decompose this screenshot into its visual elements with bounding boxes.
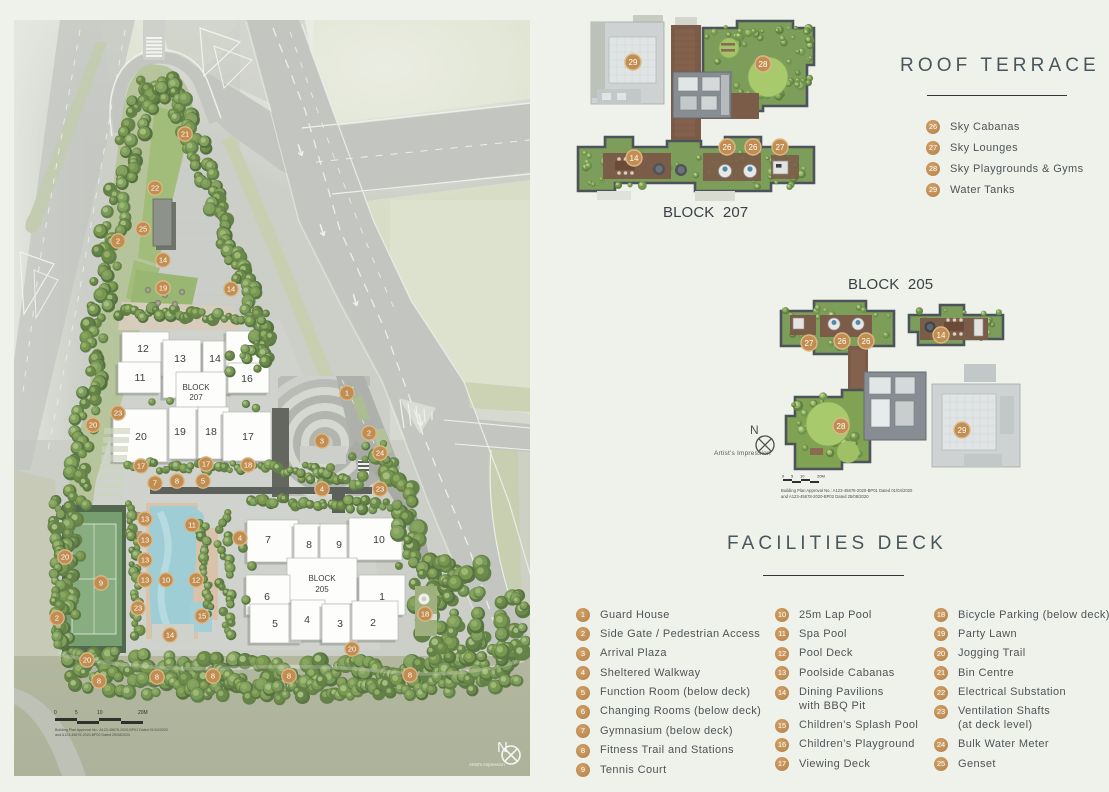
svg-text:22: 22 [151, 184, 159, 193]
svg-text:13: 13 [141, 515, 149, 524]
svg-text:3: 3 [337, 618, 343, 630]
svg-text:17: 17 [242, 431, 254, 443]
svg-text:10: 10 [162, 576, 170, 585]
svg-text:28: 28 [759, 60, 768, 69]
svg-text:9: 9 [336, 539, 342, 551]
svg-text:20M: 20M [138, 710, 148, 716]
svg-text:8: 8 [306, 539, 312, 551]
svg-text:10: 10 [97, 710, 103, 716]
svg-text:and A123-45678-2020-BP02 Dated: and A123-45678-2020-BP02 Dated 25/08/202… [55, 733, 130, 737]
svg-text:18: 18 [421, 610, 429, 619]
svg-text:3: 3 [320, 437, 324, 446]
svg-text:23: 23 [134, 604, 142, 613]
svg-text:4: 4 [320, 485, 324, 494]
svg-text:16: 16 [241, 373, 253, 385]
svg-text:20: 20 [83, 656, 91, 665]
svg-text:2: 2 [116, 237, 120, 246]
svg-text:13: 13 [141, 576, 149, 585]
svg-text:8: 8 [155, 673, 159, 682]
svg-text:5: 5 [791, 474, 794, 479]
svg-text:29: 29 [629, 58, 638, 67]
svg-text:5: 5 [75, 710, 78, 716]
svg-text:17: 17 [137, 462, 145, 471]
svg-text:1: 1 [345, 389, 349, 398]
svg-text:29: 29 [958, 426, 967, 435]
svg-text:14: 14 [159, 256, 167, 265]
svg-text:12: 12 [137, 343, 149, 355]
svg-text:2: 2 [55, 614, 59, 623]
svg-text:18: 18 [244, 461, 252, 470]
svg-text:2: 2 [370, 617, 376, 629]
svg-text:8: 8 [175, 477, 179, 486]
svg-text:4: 4 [304, 614, 310, 626]
svg-text:26: 26 [723, 143, 732, 152]
svg-text:24: 24 [376, 449, 384, 458]
svg-text:6: 6 [264, 591, 270, 603]
svg-text:9: 9 [99, 579, 103, 588]
svg-text:20: 20 [89, 421, 97, 430]
svg-text:20: 20 [348, 645, 356, 654]
svg-text:BLOCK: BLOCK [308, 574, 336, 583]
svg-text:27: 27 [776, 143, 785, 152]
svg-text:0: 0 [782, 474, 785, 479]
svg-text:12: 12 [192, 576, 200, 585]
svg-text:8: 8 [97, 677, 101, 686]
svg-text:5: 5 [201, 477, 205, 486]
svg-text:26: 26 [862, 337, 871, 346]
svg-text:205: 205 [315, 585, 329, 594]
svg-text:14: 14 [209, 353, 221, 365]
svg-text:14: 14 [630, 154, 639, 163]
svg-text:8: 8 [211, 672, 215, 681]
svg-text:13: 13 [174, 353, 186, 365]
svg-text:13: 13 [141, 536, 149, 545]
svg-text:7: 7 [153, 479, 157, 488]
svg-text:13: 13 [141, 556, 149, 565]
svg-text:Artist's Impression: Artist's Impression [469, 762, 505, 767]
svg-text:18: 18 [205, 426, 217, 438]
svg-text:8: 8 [408, 671, 412, 680]
svg-text:5: 5 [272, 618, 278, 630]
svg-text:23: 23 [114, 409, 122, 418]
svg-text:19: 19 [159, 284, 167, 293]
svg-text:25: 25 [139, 225, 147, 234]
svg-text:7: 7 [265, 534, 271, 546]
svg-text:Building Plan Approval No.: A1: Building Plan Approval No.: A123-45678-2… [55, 728, 168, 732]
svg-text:BLOCK: BLOCK [182, 383, 210, 392]
svg-text:15: 15 [198, 612, 206, 621]
svg-text:1: 1 [379, 591, 385, 603]
svg-text:27: 27 [805, 339, 814, 348]
svg-text:8: 8 [287, 672, 291, 681]
svg-text:28: 28 [837, 422, 846, 431]
svg-text:14: 14 [227, 285, 235, 294]
svg-text:20M: 20M [817, 474, 825, 479]
svg-text:2: 2 [367, 429, 371, 438]
svg-text:19: 19 [174, 426, 186, 438]
svg-text:14: 14 [166, 631, 174, 640]
svg-text:20: 20 [61, 553, 69, 562]
svg-text:11: 11 [135, 372, 146, 384]
svg-text:10: 10 [373, 534, 385, 546]
svg-text:17: 17 [202, 460, 210, 469]
svg-text:26: 26 [838, 337, 847, 346]
svg-text:11: 11 [188, 521, 196, 530]
svg-text:21: 21 [181, 130, 189, 139]
svg-text:N: N [497, 739, 508, 756]
svg-text:23: 23 [376, 485, 384, 494]
svg-text:10: 10 [800, 474, 805, 479]
svg-text:14: 14 [937, 331, 946, 340]
svg-text:0: 0 [54, 710, 57, 716]
svg-text:4: 4 [238, 534, 242, 543]
svg-text:207: 207 [189, 393, 203, 402]
svg-text:20: 20 [135, 431, 147, 443]
svg-text:26: 26 [749, 143, 758, 152]
